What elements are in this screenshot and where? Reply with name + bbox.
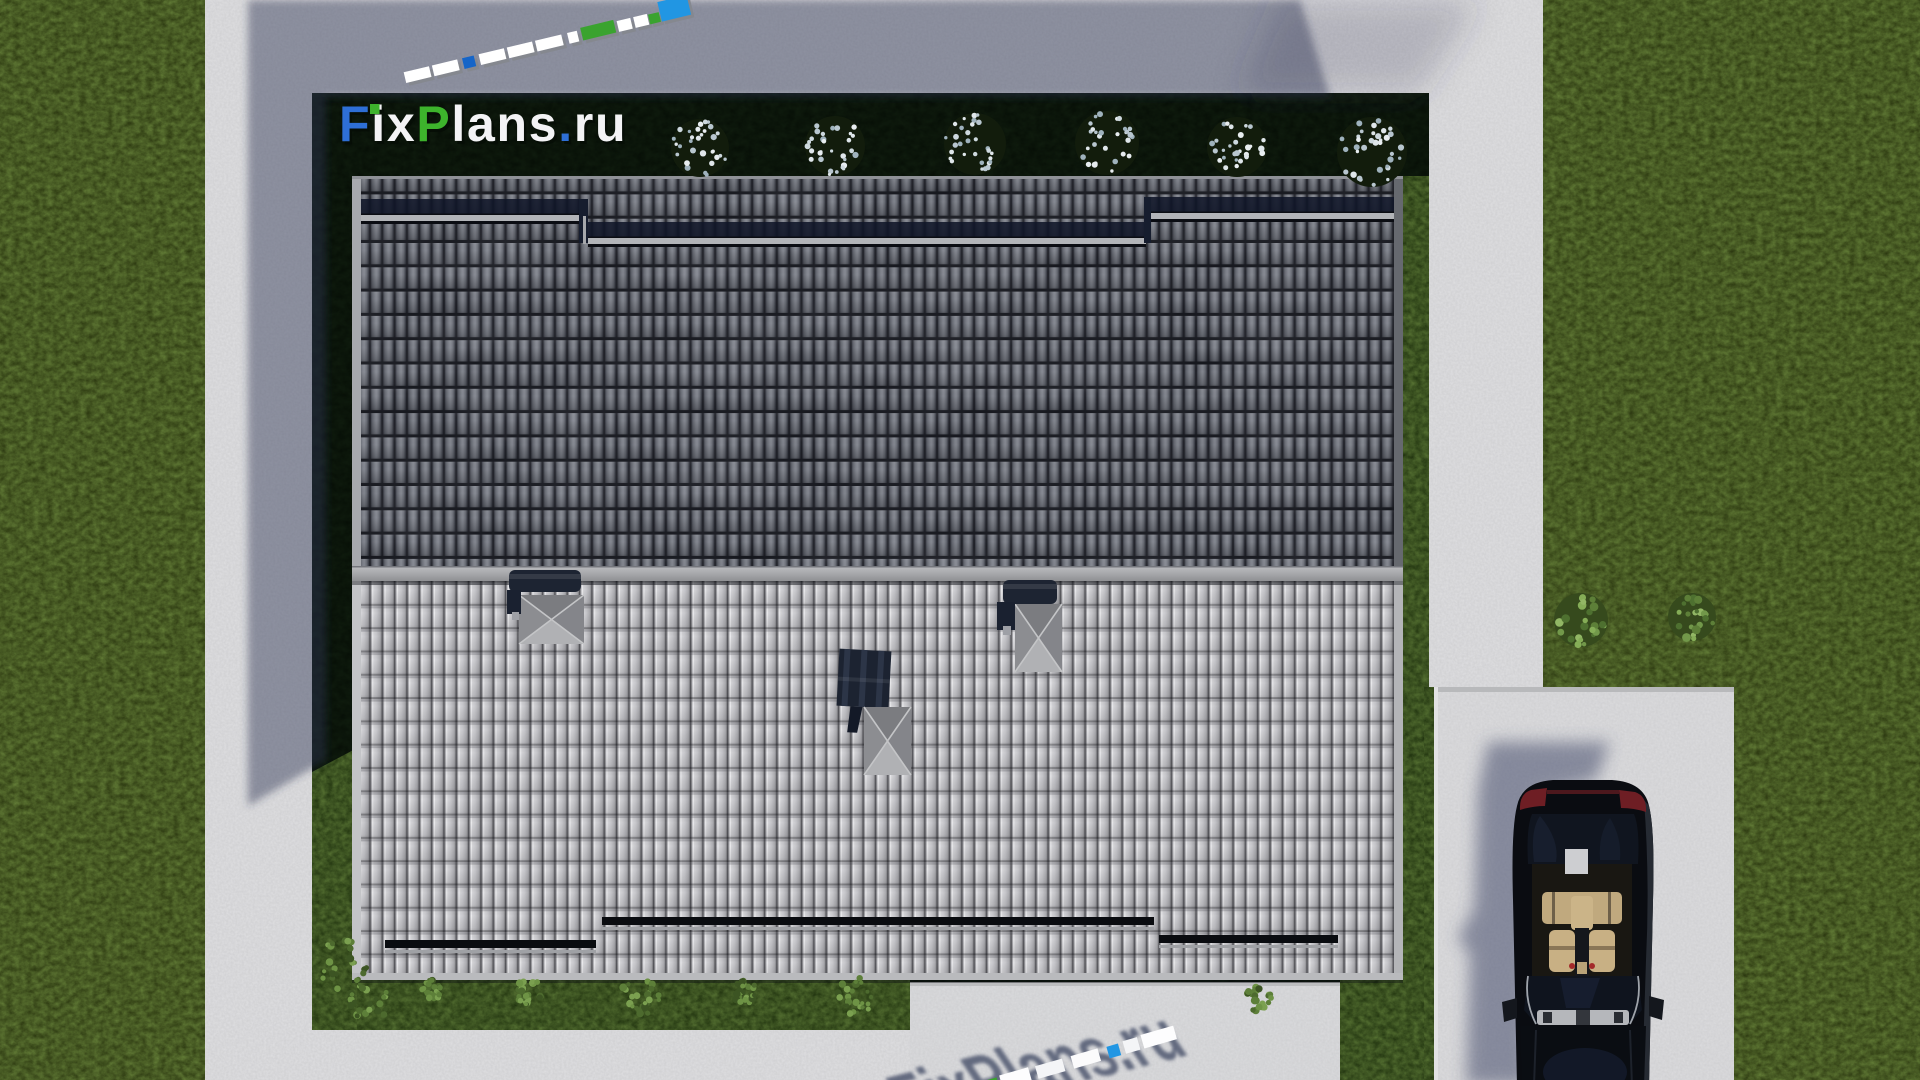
svg-text:FixPlans.ru: FixPlans.ru <box>339 96 627 152</box>
